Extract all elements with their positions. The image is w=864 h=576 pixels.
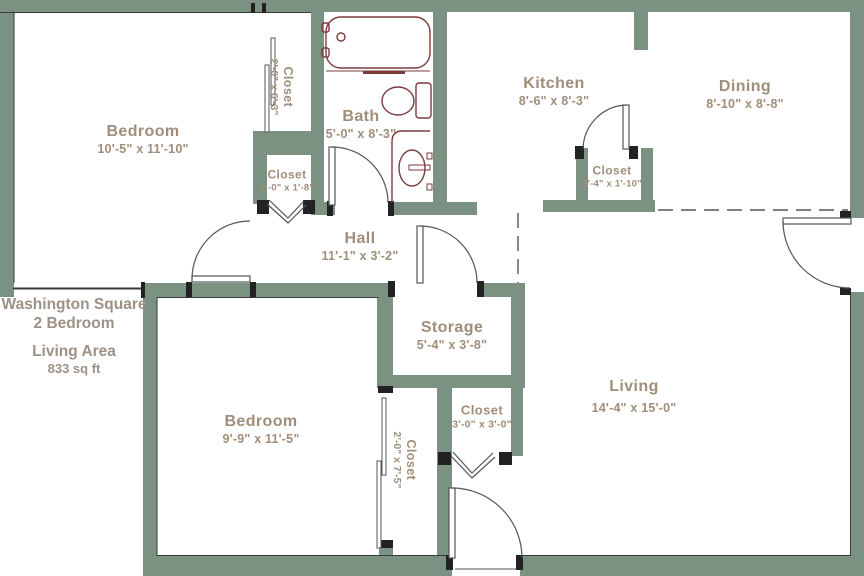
room-dims: 2'-0" x 6'-3": [267, 59, 280, 116]
room-name: Living: [592, 377, 677, 397]
hall-closet-bifold: [267, 200, 306, 223]
room-name: Closet: [582, 164, 642, 179]
plan-title-block: Washington Square 2 Bedroom Living Area …: [0, 296, 148, 377]
room-name: Closet: [280, 59, 295, 116]
closet4-sliding-doors: [377, 398, 386, 548]
room-name: Closet: [403, 432, 418, 489]
bathtub: [322, 17, 430, 74]
room-name: Bedroom: [97, 122, 188, 142]
room-name: Hall: [322, 229, 399, 249]
room-dims: 2'-0" x 7'-5": [390, 432, 403, 489]
room-name: Closet: [452, 402, 512, 418]
bedroom1-door: [192, 221, 250, 282]
room-dims: 2'-4" x 1'-10": [582, 179, 642, 191]
living-area-label: Living Area: [0, 343, 148, 361]
room-label-closet1: Closet 2'-0" x 6'-3": [267, 59, 295, 116]
room-name: Bedroom: [223, 412, 300, 432]
entry-door: [449, 488, 522, 569]
room-dims: 5'-4" x 3'-8": [417, 338, 487, 354]
room-dims: 8'-6" x 8'-3": [519, 94, 589, 110]
living-patio-door: [783, 218, 851, 288]
room-label-dining: Dining 8'-10" x 8'-8": [706, 77, 784, 113]
room-name: Storage: [417, 318, 487, 338]
room-label-bath: Bath 5'-0" x 8'-3": [326, 107, 396, 143]
room-label-bedroom2: Bedroom 9'-9" x 11'-5": [223, 412, 300, 448]
room-label-living: Living 14'-4" x 15'-0": [592, 377, 677, 417]
storage-door: [417, 226, 477, 283]
room-name: Bath: [326, 107, 396, 127]
room-dims: 8'-10" x 8'-8": [706, 97, 784, 113]
room-label-storage: Storage 5'-4" x 3'-8": [417, 318, 487, 354]
room-name: Closet: [260, 168, 314, 183]
room-dims: 9'-9" x 11'-5": [223, 432, 300, 448]
bath-sink: [392, 131, 432, 203]
room-dims: 3'-0" x 3'-0": [452, 419, 512, 432]
room-dims: 5'-0" x 8'-3": [326, 127, 396, 143]
closet3-bifold: [451, 452, 495, 478]
room-label-bedroom1: Bedroom 10'-5" x 11'-10": [97, 122, 188, 158]
room-label-closet2: Closet 2'-0" x 1'-8": [260, 168, 314, 195]
room-dims: 10'-5" x 11'-10": [97, 142, 188, 158]
plan-title: Washington Square: [0, 296, 148, 314]
bath-door: [329, 147, 388, 205]
room-dims: 2'-0" x 1'-8": [260, 183, 314, 195]
floor-plan: Bedroom 10'-5" x 11'-10" Closet 2'-0" x …: [0, 0, 864, 576]
room-name: Kitchen: [519, 74, 589, 94]
room-label-kitchen: Kitchen 8'-6" x 8'-3": [519, 74, 589, 110]
living-area-value: 833 sq ft: [0, 361, 148, 377]
room-label-hall: Hall 11'-1" x 3'-2": [322, 229, 399, 265]
room-label-kitchen-closet: Closet 2'-4" x 1'-10": [582, 164, 642, 191]
room-dims: 14'-4" x 15'-0": [592, 401, 677, 417]
kitchen-closet-door: [583, 105, 629, 149]
plan-subtitle: 2 Bedroom: [0, 314, 148, 334]
room-label-closet4: Closet 2'-0" x 7'-5": [390, 432, 418, 489]
room-label-closet3: Closet 3'-0" x 3'-0": [452, 402, 512, 431]
room-name: Dining: [706, 77, 784, 97]
room-dims: 11'-1" x 3'-2": [322, 249, 399, 265]
